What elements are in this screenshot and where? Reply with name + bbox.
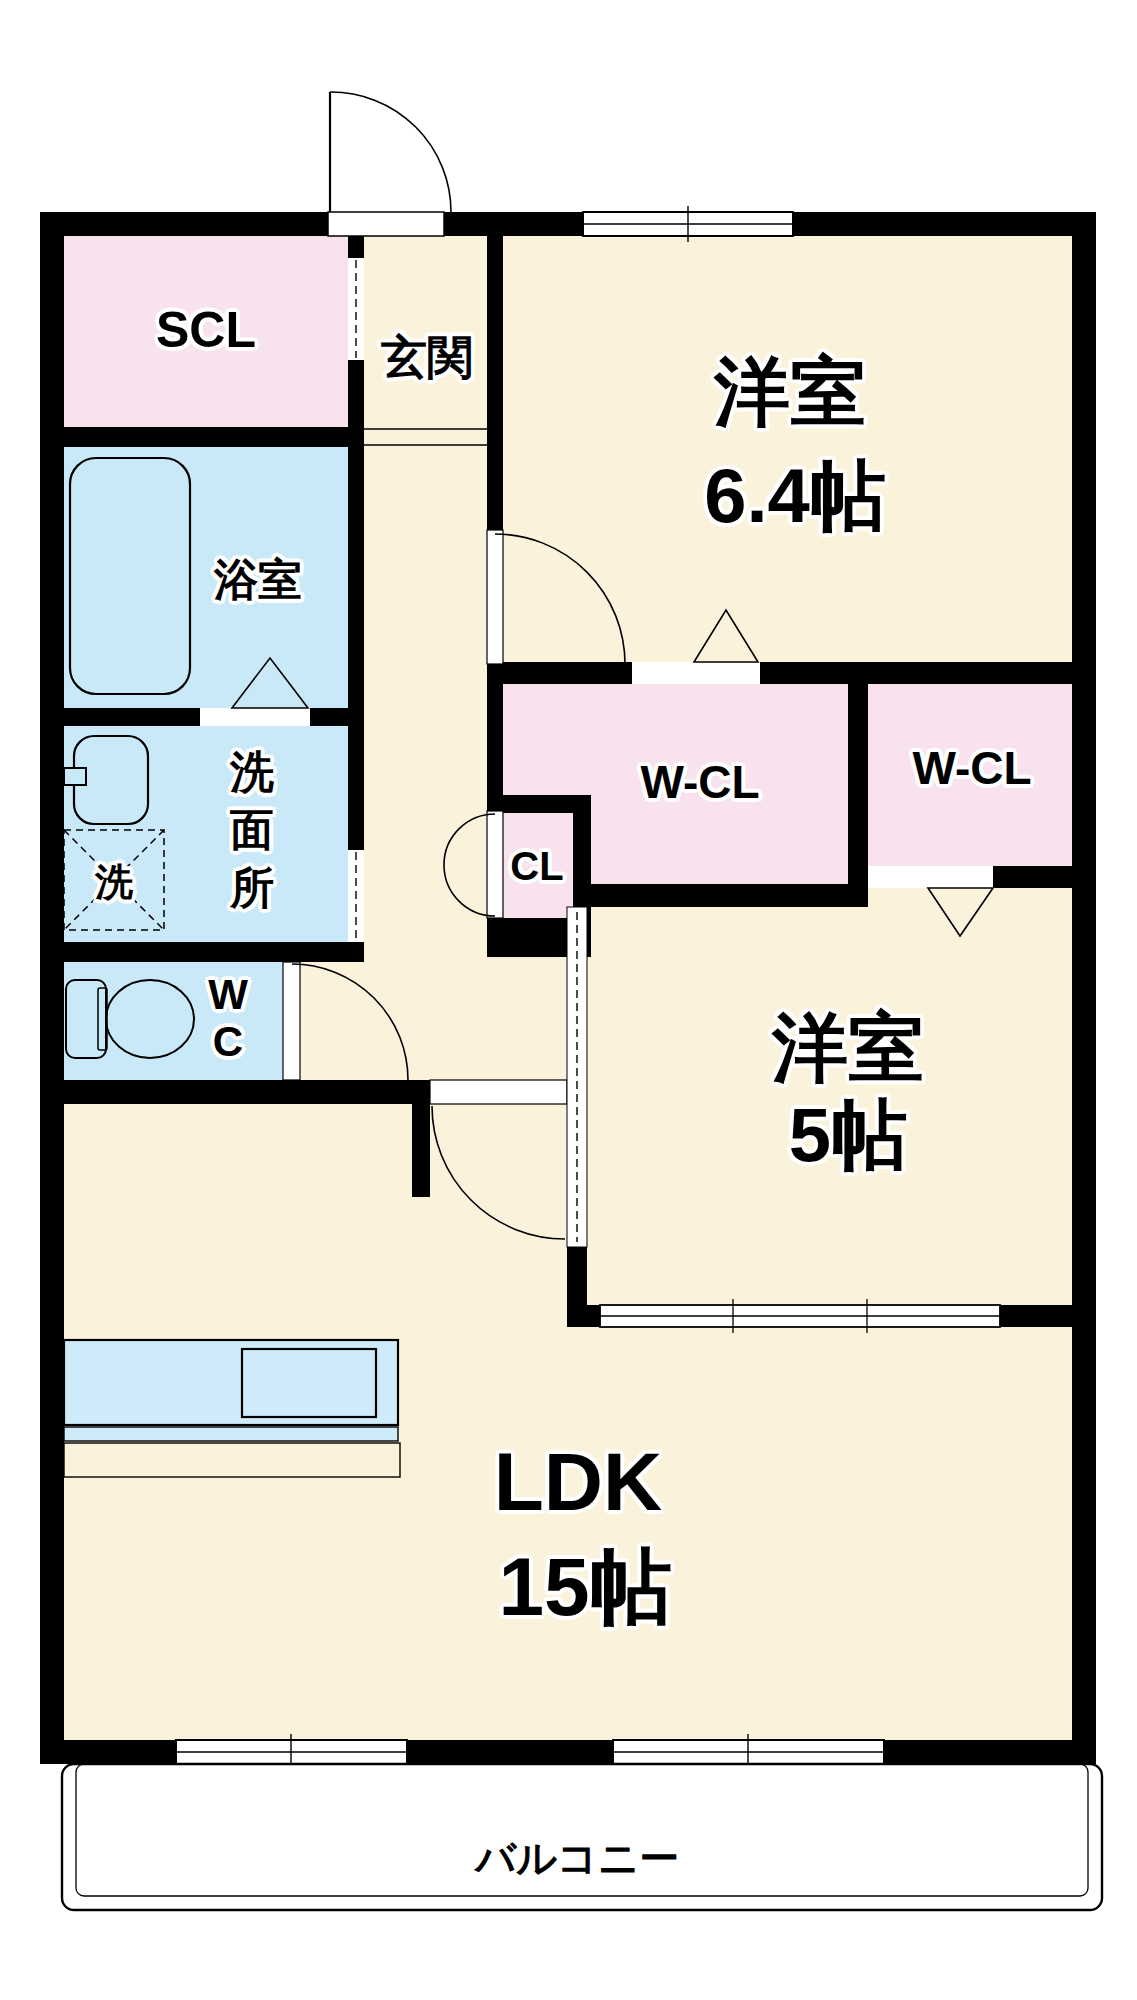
room-label-balcony: バルコニー	[475, 1838, 679, 1878]
window-top-bedroom1	[583, 206, 793, 242]
kitchen-counter-front	[64, 1443, 400, 1477]
kitchen-counter	[64, 1340, 400, 1477]
entrance-door-arc	[330, 92, 451, 212]
room-label-wcl-right: W-CL	[912, 745, 1031, 791]
bathroom-door-opening	[200, 708, 310, 726]
room-label-washroom-1: 洗	[230, 750, 274, 794]
room-label-wcl-left: W-CL	[640, 759, 759, 805]
floorplan-svg	[0, 0, 1137, 2000]
entrance-opening	[328, 212, 444, 236]
room-label-wc-1: W	[208, 974, 248, 1016]
kitchen-counter-edge	[64, 1427, 398, 1441]
room-bathroom-floor	[64, 447, 348, 708]
floor-plan: SCL 玄関 洋室 6.4帖 浴室 洗 面 所 洗 W C CL W-CL W-…	[0, 0, 1137, 2000]
label-laundry: 洗	[95, 863, 133, 901]
room-label-bedroom1: 洋室	[714, 354, 866, 430]
wall-scl-bottom	[40, 427, 364, 447]
room-label-ldk: LDK	[494, 1441, 663, 1523]
room-label-scl: SCL	[156, 305, 256, 355]
room-washroom-floor	[64, 726, 348, 942]
kitchen-sink	[242, 1349, 376, 1417]
room-label-genkan: 玄関	[381, 334, 473, 380]
wcl-right-door-opening	[868, 866, 993, 888]
bedroom1-door-leaf	[487, 530, 503, 664]
room-label-bedroom2-size: 5帖	[789, 1097, 907, 1173]
cl-door-opening	[487, 811, 503, 918]
room-label-ldk-size: 15帖	[498, 1546, 671, 1628]
room-label-washroom-2: 面	[230, 808, 274, 852]
wall-wcl-left-bottom	[567, 884, 848, 907]
washbasin-tap	[64, 768, 86, 785]
wall-top	[40, 212, 1096, 236]
wall-right	[1072, 212, 1096, 1764]
room-label-wc-2: C	[213, 1021, 243, 1063]
room-label-bedroom1-size: 6.4帖	[704, 458, 886, 534]
wall-wc-bottom	[40, 1080, 430, 1104]
wcl-left-door-opening	[632, 662, 760, 684]
room-label-bathroom: 浴室	[214, 558, 302, 602]
room-label-washroom-3: 所	[230, 866, 274, 910]
room-label-cl: CL	[510, 846, 563, 886]
wall-stub-ldk	[412, 1104, 430, 1197]
wc-door-leaf	[283, 962, 300, 1080]
room-label-bedroom2: 洋室	[772, 1010, 924, 1086]
wall-washroom-bottom	[40, 942, 364, 962]
wall-bedroom1-bottom	[503, 662, 1072, 684]
ldk-door-opening	[430, 1080, 567, 1104]
